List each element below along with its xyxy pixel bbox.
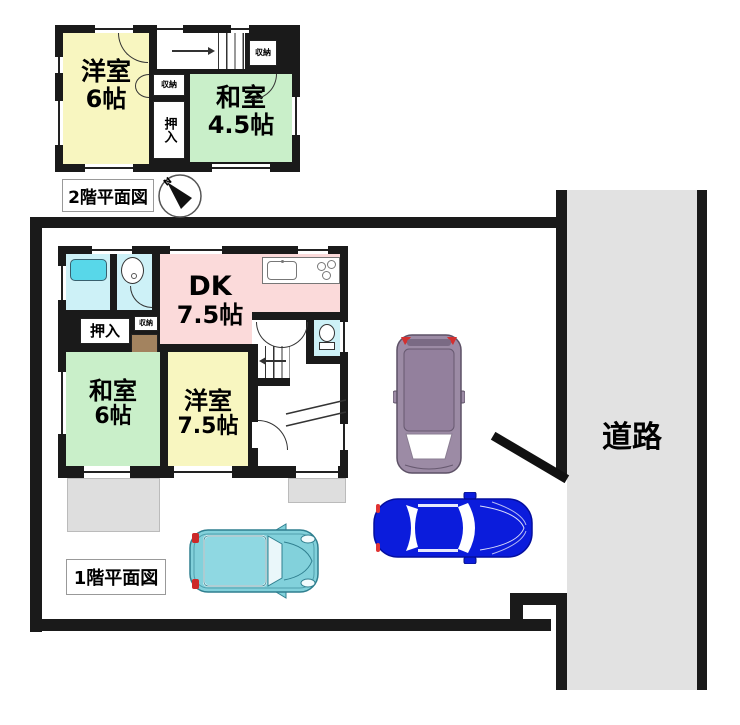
car-hatchback-teal: [188, 522, 322, 600]
room-size: 4.5帖: [208, 112, 275, 139]
window-mark: [55, 101, 63, 145]
window-mark: [231, 25, 249, 33]
wall-yoshitsu-hall-upper: [248, 344, 258, 422]
window-mark: [85, 164, 133, 172]
label-1f-text: 1階平面図: [74, 564, 159, 590]
storage-label: 収納: [161, 81, 177, 89]
wall-yoshitsu-hall-lower: [248, 448, 258, 466]
entrance-porch-right: [288, 478, 346, 503]
window-mark: [58, 372, 66, 434]
room-washitsu-1f-label: 和室 6帖: [66, 378, 160, 430]
room-washitsu-2f-label: 和室 4.5帖: [190, 84, 292, 139]
terrace-porch-left: [67, 478, 160, 532]
road-label: 道路: [567, 412, 697, 456]
window-mark: [55, 57, 63, 73]
toilet-bowl: [319, 324, 335, 342]
storage-box-1f: 収納: [134, 316, 158, 331]
sink-drain: [131, 273, 137, 279]
gate-line: [488, 430, 572, 486]
bathtub: [70, 259, 107, 281]
floorplan-canvas: 道路 洋室 6帖 収納 和室 4.5帖 収納 押入 2階平面: [0, 0, 740, 725]
closet-label: 押入: [90, 324, 120, 339]
label-2f-box: 2階平面図: [62, 179, 154, 212]
window-mark: [340, 322, 348, 352]
stairs-2f-arrow-line: [172, 50, 208, 52]
road-left-line-lower: [556, 593, 567, 690]
site-boundary-left: [30, 217, 42, 632]
room-size: 6帖: [94, 405, 131, 430]
car-sedan-blue: [372, 492, 534, 564]
stove-burner: [322, 271, 331, 280]
stove-burner: [317, 262, 326, 271]
label-2f-text: 2階平面図: [68, 183, 148, 208]
room-size: 6帖: [86, 86, 127, 113]
storage-box-top-2f: 収納: [249, 40, 277, 66]
wall-below-stairs: [258, 378, 290, 386]
site-boundary-top: [30, 217, 558, 228]
stairs-2f-arrow-head: [208, 47, 215, 55]
label-1f-box: 1階平面図: [66, 559, 166, 595]
compass-icon: N: [157, 173, 203, 219]
room-dk-label: DK 7.5帖: [162, 272, 258, 329]
storage-label: 収納: [139, 320, 153, 327]
kitchen-sink: [267, 261, 297, 280]
window-mark: [212, 164, 270, 172]
storage-label: 収納: [255, 49, 271, 57]
room-name: 洋室: [184, 388, 232, 415]
stove: [315, 259, 338, 282]
road-right-line: [697, 190, 707, 690]
closet-oshiire-2f: 押入: [153, 101, 185, 159]
car-minivan-purple: [393, 333, 465, 475]
toilet-wall-bottom: [306, 356, 342, 364]
storage-box-mid-2f: 収納: [153, 74, 185, 96]
window-mark: [292, 97, 300, 135]
entrance-door-mark: [296, 466, 338, 478]
closet-oshiire-1f: 押入: [80, 318, 130, 344]
window-mark: [174, 466, 232, 478]
faucet-dot: [281, 260, 284, 263]
room-size: 7.5帖: [178, 415, 239, 440]
sink: [121, 257, 144, 284]
window-mark: [95, 25, 133, 33]
site-boundary-notch-h: [510, 593, 567, 605]
toilet-tank: [319, 342, 335, 350]
room-name: DK: [188, 272, 231, 302]
window-mark: [340, 424, 348, 450]
room-size: 7.5帖: [177, 302, 244, 329]
closet-label: 押入: [163, 117, 176, 143]
window-mark: [170, 246, 222, 254]
site-boundary-bottom: [30, 619, 551, 631]
stairs-2f: [211, 33, 245, 69]
room-yoshitsu-1f-label: 洋室 7.5帖: [168, 388, 248, 440]
stairs-1f-arrow-line: [266, 360, 286, 362]
stairs-1f-arrow-head: [259, 357, 266, 365]
stove-burner: [327, 260, 336, 269]
window-mark: [84, 466, 130, 478]
room-name: 洋室: [81, 58, 131, 86]
window-mark: [92, 246, 132, 254]
room-name: 和室: [89, 378, 137, 405]
entry-step-brown: [131, 334, 158, 353]
window-mark: [157, 25, 183, 33]
window-mark: [298, 246, 328, 254]
window-mark: [58, 266, 66, 300]
